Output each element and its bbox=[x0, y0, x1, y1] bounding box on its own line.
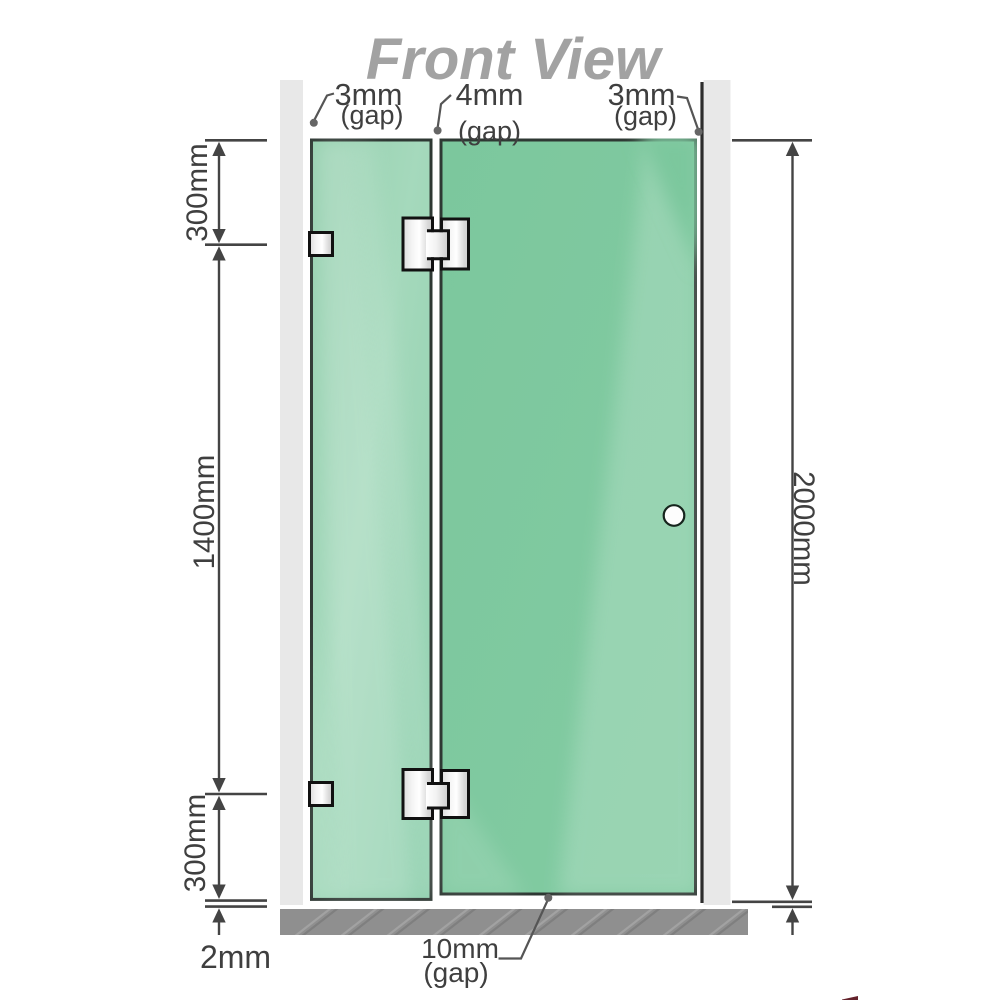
svg-text:(gap): (gap) bbox=[340, 100, 403, 130]
svg-text:4mm: 4mm bbox=[456, 78, 524, 112]
svg-text:300mm: 300mm bbox=[179, 794, 212, 892]
svg-text:(gap): (gap) bbox=[458, 116, 521, 146]
svg-text:2mm: 2mm bbox=[200, 939, 271, 975]
svg-text:300mm: 300mm bbox=[181, 143, 214, 241]
svg-text:1400mm: 1400mm bbox=[188, 455, 221, 570]
svg-text:(gap): (gap) bbox=[423, 957, 488, 988]
svg-text:(gap): (gap) bbox=[614, 101, 677, 131]
svg-text:2000mm: 2000mm bbox=[787, 471, 820, 586]
